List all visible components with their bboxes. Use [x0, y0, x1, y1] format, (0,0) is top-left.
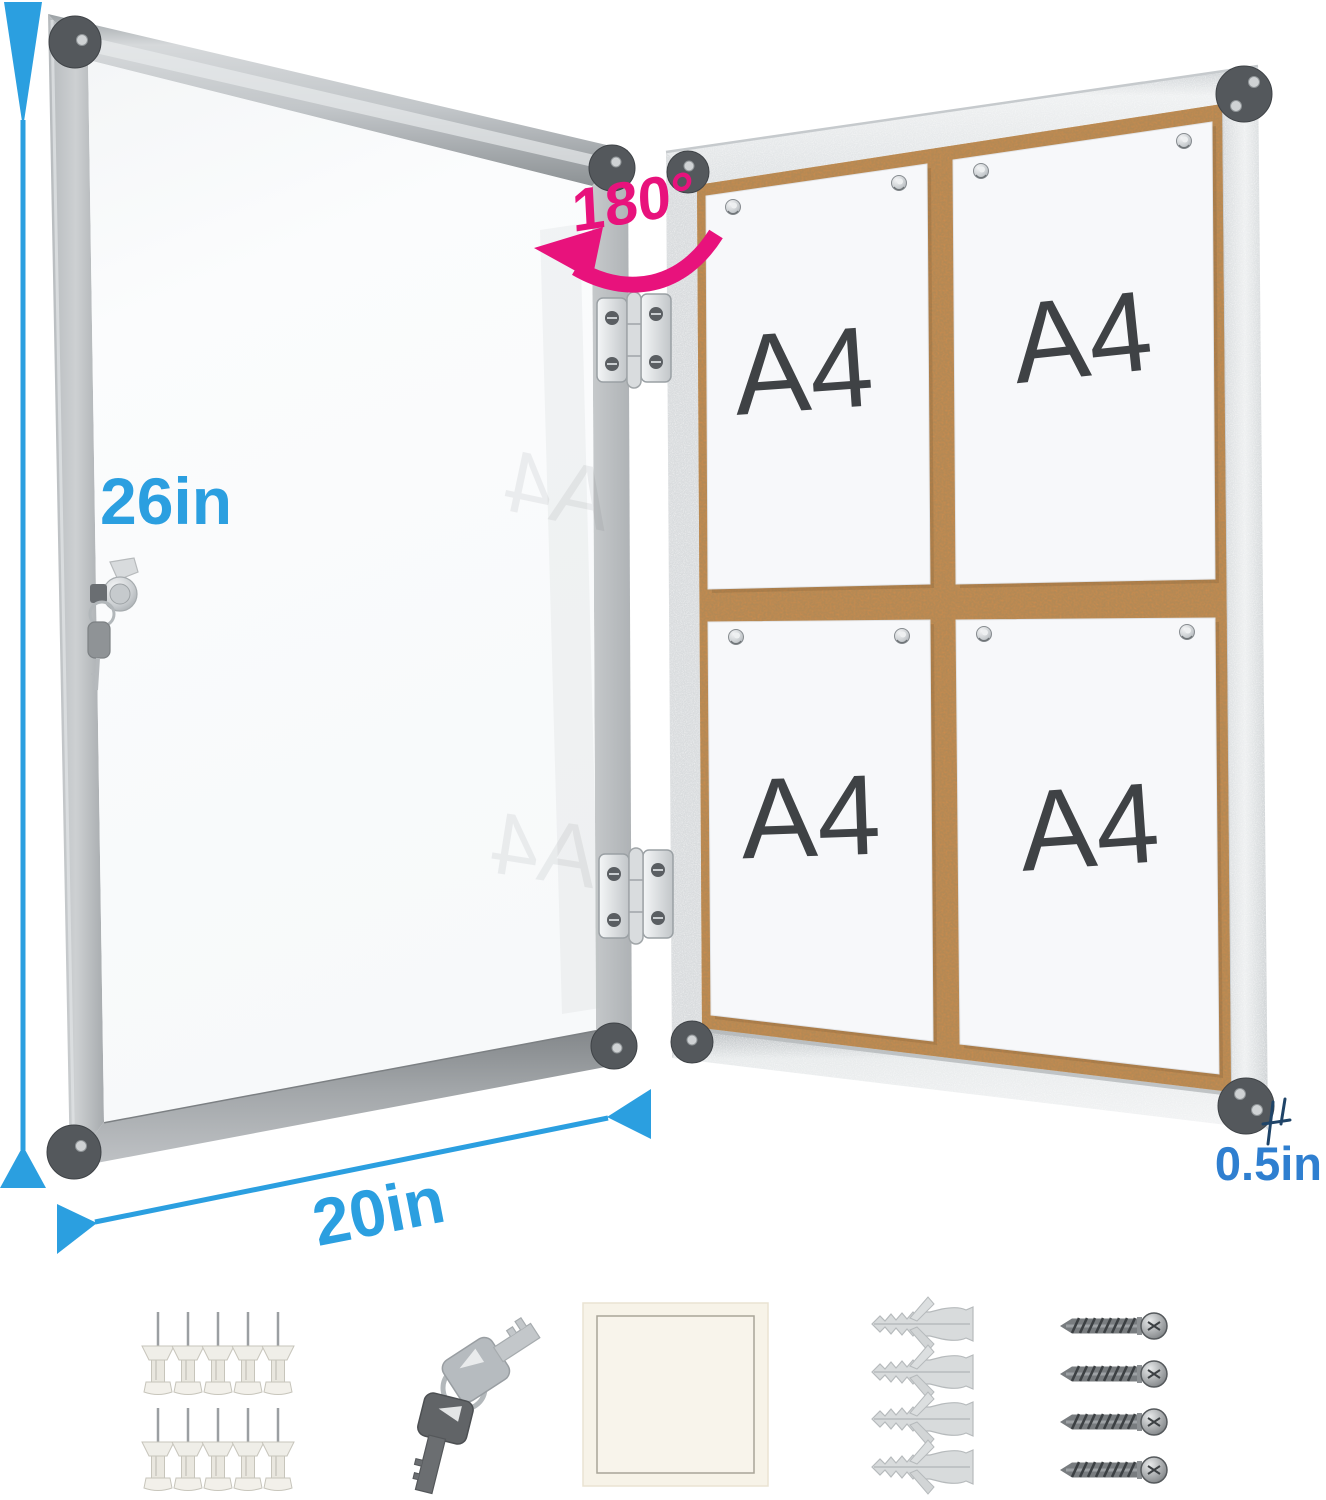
push-pin-icon	[172, 1408, 204, 1491]
push-pins-set	[142, 1312, 294, 1491]
tack-icon	[977, 627, 992, 642]
hanging-key-icon	[88, 622, 110, 658]
key-light-icon	[439, 1311, 549, 1406]
door-glass	[88, 60, 596, 1122]
paper-label-4: A4	[1015, 759, 1163, 895]
screw-icon	[1060, 1361, 1167, 1387]
height-dimension-arrow	[0, 2, 46, 1188]
screw-icon	[1060, 1457, 1167, 1483]
push-pin-icon	[142, 1312, 174, 1395]
hinge-icon	[599, 848, 673, 944]
screw-icon	[1060, 1313, 1167, 1339]
push-pin-icon	[202, 1408, 234, 1491]
keys-icon	[403, 1311, 549, 1498]
wall-anchor-icon	[872, 1440, 973, 1494]
screws-set	[1060, 1313, 1167, 1483]
height-label: 26in	[100, 464, 232, 538]
bulletin-board-illustration: A4 A4 A4 A4	[0, 0, 1326, 1500]
tack-icon	[892, 176, 907, 191]
push-pin-icon	[232, 1408, 264, 1491]
tack-icon	[729, 630, 744, 645]
paper-label-3: A4	[739, 752, 883, 884]
door-panel: A4 A4	[47, 14, 637, 1179]
tack-icon	[974, 164, 989, 179]
tack-icon	[726, 200, 741, 215]
depth-label: 0.5in	[1215, 1137, 1322, 1190]
tack-icon	[1180, 625, 1195, 640]
hinge-icon	[597, 292, 671, 388]
tack-icon	[895, 629, 910, 644]
push-pin-icon	[232, 1312, 264, 1395]
push-pin-icon	[142, 1408, 174, 1491]
paper-label-2: A4	[1006, 267, 1158, 408]
push-pin-icon	[262, 1408, 294, 1491]
adhesive-pad	[583, 1303, 768, 1486]
push-pin-icon	[262, 1312, 294, 1395]
key-dark-icon	[403, 1391, 475, 1498]
ghost-reflection-text: A4	[484, 793, 606, 908]
push-pin-icon	[202, 1312, 234, 1395]
tack-icon	[1177, 134, 1192, 149]
wall-anchor-icon	[872, 1297, 973, 1351]
push-pin-icon	[172, 1312, 204, 1395]
wall-anchors-set	[872, 1297, 973, 1494]
product-image-tamper-proof-bulletin-board: A4 A4 A4 A4	[0, 0, 1326, 1500]
screw-icon	[1060, 1409, 1167, 1435]
wall-anchor-icon	[872, 1392, 973, 1446]
wall-anchor-icon	[872, 1345, 973, 1399]
paper-label-1: A4	[729, 303, 877, 439]
cork-board-panel: A4 A4 A4 A4	[666, 66, 1274, 1134]
